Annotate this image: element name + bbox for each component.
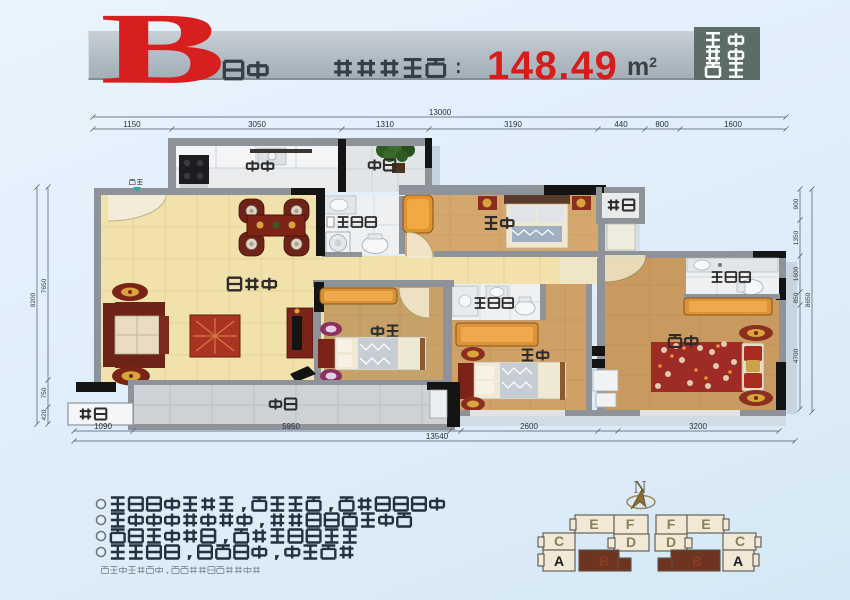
svg-text:440: 440 <box>614 120 628 129</box>
svg-text:13540: 13540 <box>426 432 449 441</box>
svg-text:850: 850 <box>793 292 800 303</box>
svg-text:3190: 3190 <box>504 120 522 129</box>
svg-text:3050: 3050 <box>248 120 266 129</box>
svg-text:1600: 1600 <box>793 266 800 281</box>
svg-text:F: F <box>667 516 676 532</box>
svg-text:E: E <box>589 516 598 532</box>
svg-text:800: 800 <box>655 120 669 129</box>
svg-text:D: D <box>666 534 676 550</box>
svg-text:4700: 4700 <box>793 348 800 363</box>
svg-text:7650: 7650 <box>41 278 48 293</box>
svg-text:8650: 8650 <box>805 292 812 307</box>
svg-text:C: C <box>554 533 564 549</box>
svg-text:C: C <box>735 533 745 549</box>
svg-text:5950: 5950 <box>282 422 300 431</box>
svg-text:9200: 9200 <box>30 292 37 307</box>
svg-text:A: A <box>554 553 564 569</box>
svg-text:1150: 1150 <box>123 120 141 129</box>
svg-text:B: B <box>692 553 702 569</box>
svg-text:E: E <box>701 516 710 532</box>
svg-text:1310: 1310 <box>376 120 394 129</box>
svg-text:750: 750 <box>41 387 48 398</box>
svg-text:B: B <box>599 553 609 569</box>
svg-text:900: 900 <box>793 198 800 209</box>
svg-text:1090: 1090 <box>94 422 112 431</box>
svg-text:420: 420 <box>41 409 48 420</box>
svg-text:F: F <box>626 516 635 532</box>
svg-text:13000: 13000 <box>429 108 452 117</box>
svg-text:1350: 1350 <box>793 230 800 245</box>
svg-text:A: A <box>733 553 743 569</box>
svg-text:1600: 1600 <box>724 120 742 129</box>
svg-text:2600: 2600 <box>520 422 538 431</box>
svg-text:3200: 3200 <box>689 422 707 431</box>
svg-text:D: D <box>626 534 636 550</box>
